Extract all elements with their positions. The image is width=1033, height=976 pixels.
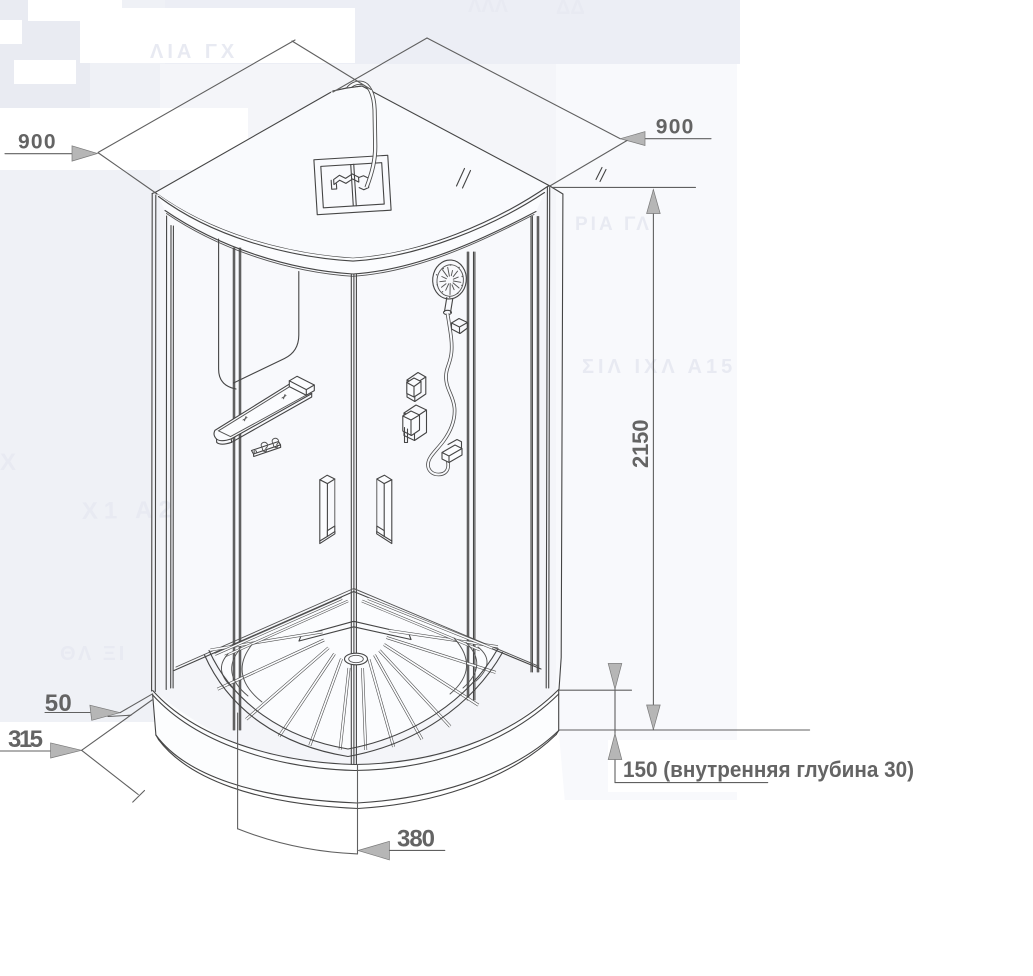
svg-text:150 (внутренняя глубина 30): 150 (внутренняя глубина 30) bbox=[623, 757, 914, 782]
svg-text:900: 900 bbox=[656, 115, 694, 138]
svg-text:380: 380 bbox=[397, 825, 435, 852]
svg-text:50: 50 bbox=[45, 690, 72, 717]
svg-text:900: 900 bbox=[18, 130, 56, 153]
svg-text:ΛΛΛ: ΛΛΛ bbox=[468, 0, 509, 17]
svg-text:ΛΙΑ ΓΧ: ΛΙΑ ΓΧ bbox=[150, 41, 238, 63]
svg-text:2150: 2150 bbox=[628, 420, 653, 469]
svg-text:ΔΔ: ΔΔ bbox=[556, 0, 585, 19]
svg-text:ΘΛ ΞΙ: ΘΛ ΞΙ bbox=[60, 643, 127, 665]
svg-text:Χ: Χ bbox=[0, 449, 16, 476]
svg-text:ΣΙΛ ΙΧΛ Α15: ΣΙΛ ΙΧΛ Α15 bbox=[582, 356, 736, 378]
svg-text:315: 315 bbox=[8, 726, 43, 753]
svg-text:ΡΙΑ ΓΛ: ΡΙΑ ΓΛ bbox=[575, 214, 652, 235]
